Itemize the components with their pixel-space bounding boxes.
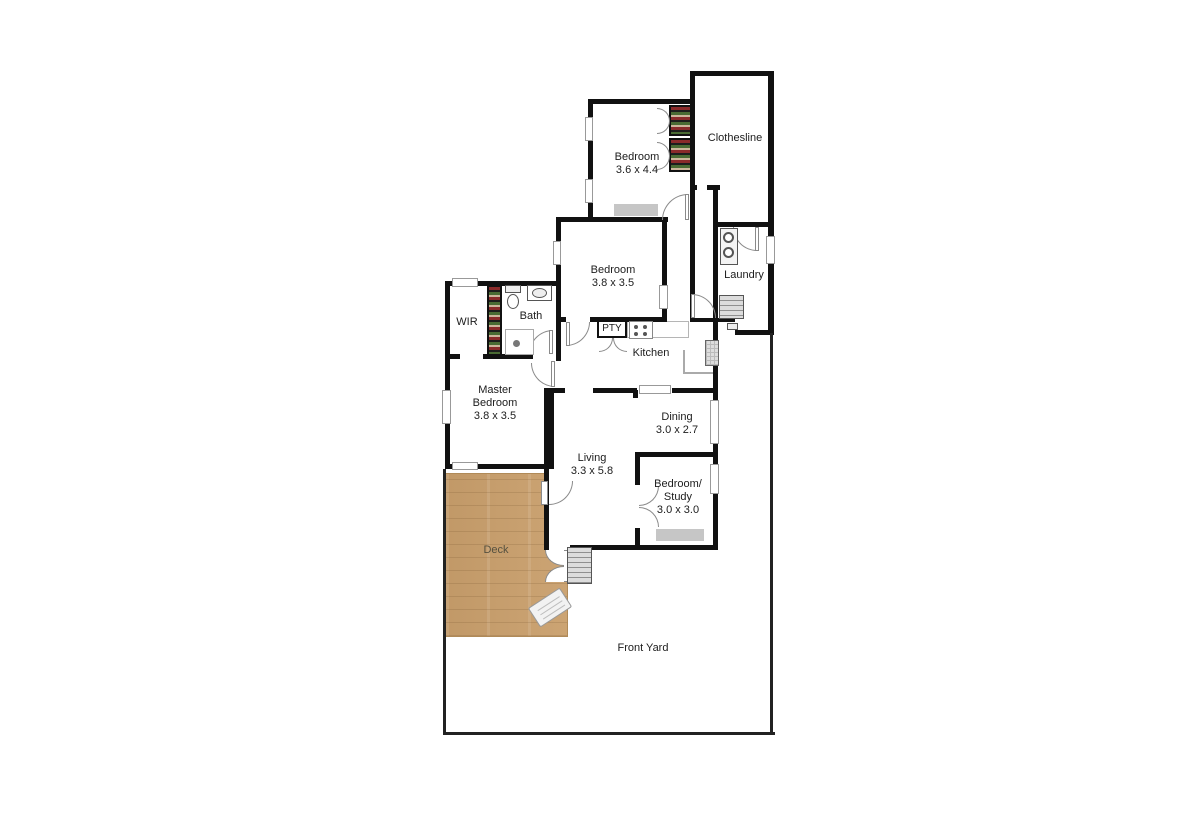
room-name: Dining bbox=[617, 411, 737, 424]
wall-segment bbox=[672, 388, 718, 393]
wall-segment bbox=[445, 354, 460, 359]
room-label-pantry: PTY bbox=[597, 320, 627, 338]
burner-icon bbox=[643, 325, 647, 329]
window-icon bbox=[639, 385, 671, 394]
room-name: Bedroom bbox=[577, 151, 697, 164]
wall-segment bbox=[690, 185, 697, 190]
room-name: Living bbox=[532, 452, 652, 465]
yard-fence-left bbox=[443, 469, 446, 735]
stairs-icon bbox=[567, 547, 592, 584]
window-icon bbox=[553, 241, 561, 265]
room-name: Study bbox=[618, 491, 738, 504]
room-label-bedroom-mid: Bedroom 3.8 x 3.5 bbox=[553, 264, 673, 290]
room-dims: 3.0 x 2.7 bbox=[617, 424, 737, 437]
room-name: Deck bbox=[436, 544, 556, 557]
room-name: Clothesline bbox=[675, 132, 795, 145]
room-label-dining: Dining 3.0 x 2.7 bbox=[617, 411, 737, 437]
wall-segment bbox=[768, 71, 774, 335]
wall-segment bbox=[690, 71, 774, 76]
basin-bowl-icon bbox=[532, 288, 547, 298]
yard-fence-bottom bbox=[443, 732, 775, 735]
window-icon bbox=[766, 236, 775, 264]
washer-drum-icon bbox=[723, 247, 734, 258]
room-label-living: Living 3.3 x 5.8 bbox=[532, 452, 652, 478]
room-label-master-bedroom: Master Bedroom 3.8 x 3.5 bbox=[435, 384, 555, 423]
room-label-laundry: Laundry bbox=[684, 269, 804, 282]
wall-segment bbox=[735, 330, 771, 335]
room-name: Bedroom bbox=[435, 397, 555, 410]
door-leaf-icon bbox=[691, 294, 695, 318]
room-dims: 3.0 x 3.0 bbox=[618, 504, 738, 517]
door-leaf-icon bbox=[541, 481, 548, 505]
burner-icon bbox=[634, 325, 638, 329]
room-name: Kitchen bbox=[591, 347, 711, 360]
toilet-icon bbox=[505, 285, 521, 293]
step-icon bbox=[727, 323, 738, 330]
wall-segment bbox=[556, 217, 668, 222]
window-icon bbox=[585, 179, 593, 203]
window-icon bbox=[452, 462, 478, 470]
wall-segment bbox=[633, 390, 638, 398]
room-name: Bedroom/ bbox=[618, 478, 738, 491]
stairs-icon bbox=[719, 295, 744, 319]
yard-fence-right bbox=[770, 333, 773, 735]
door-leaf-icon bbox=[685, 194, 689, 220]
shower-head-icon bbox=[513, 340, 520, 347]
room-dims: 3.8 x 3.5 bbox=[435, 410, 555, 423]
room-label-bath: Bath bbox=[471, 310, 591, 323]
door-leaf-icon bbox=[549, 330, 553, 354]
room-dims: 3.8 x 3.5 bbox=[553, 277, 673, 290]
window-seat bbox=[614, 204, 658, 216]
room-name: Bath bbox=[471, 310, 591, 323]
window-icon bbox=[452, 278, 478, 287]
burner-icon bbox=[634, 332, 638, 336]
stove-icon bbox=[629, 321, 653, 339]
room-name: Master bbox=[435, 384, 555, 397]
room-name: PTY bbox=[602, 323, 621, 334]
floor-plan: Bedroom 3.6 x 4.4 Clothesline Bedroom 3.… bbox=[0, 0, 1200, 820]
wall-segment bbox=[637, 545, 718, 550]
room-dims: 3.3 x 5.8 bbox=[532, 465, 652, 478]
room-dims: 3.6 x 4.4 bbox=[577, 164, 697, 177]
washer-drum-icon bbox=[723, 232, 734, 243]
room-label-deck: Deck bbox=[436, 544, 556, 557]
room-label-front-yard: Front Yard bbox=[583, 642, 703, 655]
wall-segment bbox=[588, 99, 695, 104]
room-name: Bedroom bbox=[553, 264, 673, 277]
room-label-bedroom-top: Bedroom 3.6 x 4.4 bbox=[577, 151, 697, 177]
room-label-study: Bedroom/ Study 3.0 x 3.0 bbox=[618, 478, 738, 517]
wall-segment bbox=[445, 281, 450, 469]
room-label-clothesline: Clothesline bbox=[675, 132, 795, 145]
room-name: Laundry bbox=[684, 269, 804, 282]
window-seat bbox=[656, 529, 704, 541]
room-name: Front Yard bbox=[583, 642, 703, 655]
toilet-icon bbox=[507, 294, 519, 309]
window-icon bbox=[585, 117, 593, 141]
room-label-kitchen: Kitchen bbox=[591, 347, 711, 360]
door-leaf-icon bbox=[755, 227, 759, 251]
door-leaf-icon bbox=[566, 322, 570, 346]
wall-segment bbox=[593, 388, 637, 393]
burner-icon bbox=[643, 332, 647, 336]
